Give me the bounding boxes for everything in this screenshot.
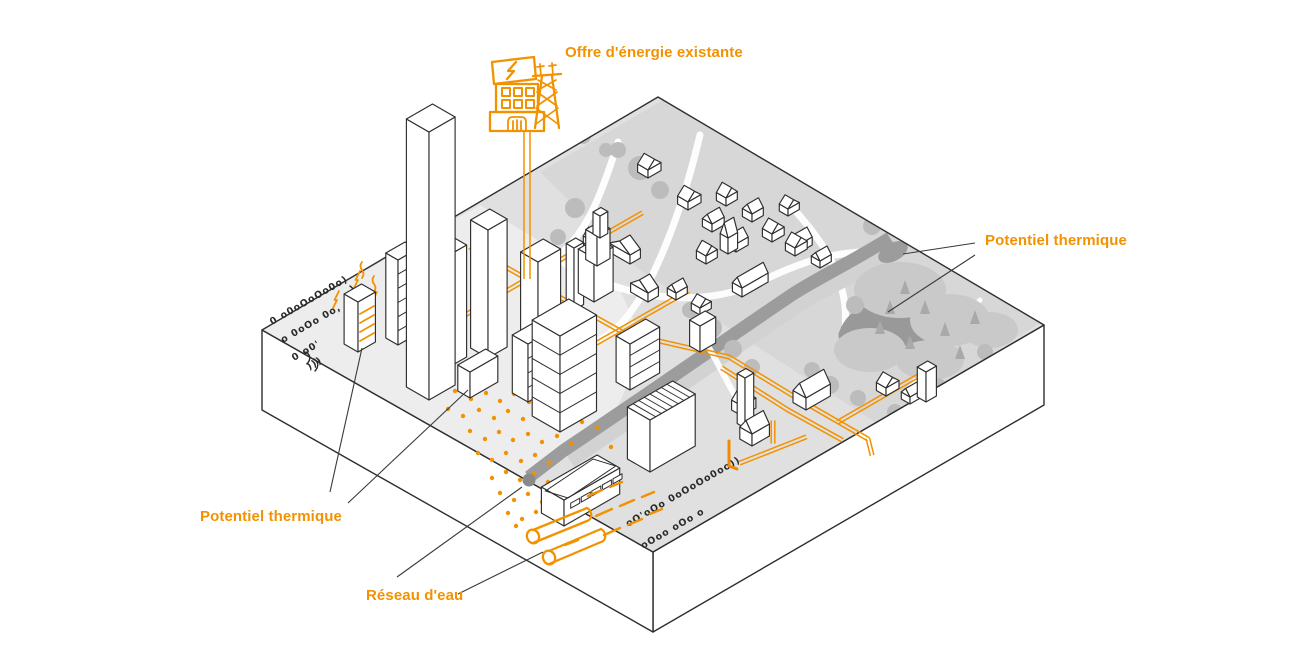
label-thermal-potential-left: Potentiel thermique: [200, 508, 342, 525]
label-energy-supply: Offre d'énergie existante: [565, 44, 743, 61]
label-water-network: Réseau d'eau: [366, 587, 463, 604]
energy-potential-diagram: 0 o0oOoOo0o)o 0oOo 0o,0 o0')))oO'oOo 0oO…: [0, 0, 1300, 668]
power-plant-icon: [490, 57, 561, 131]
river-outlet: [523, 474, 536, 487]
label-thermal-potential-right: Potentiel thermique: [985, 232, 1127, 249]
isometric-city-illustration: 0 o0oOoOo0o)o 0oOo 0o,0 o0')))oO'oOo 0oO…: [0, 0, 1300, 668]
